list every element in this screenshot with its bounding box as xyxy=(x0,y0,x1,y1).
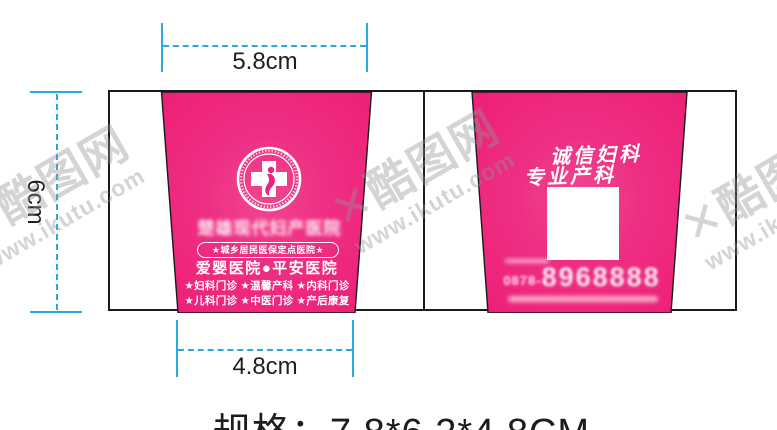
designation-badge: ★城乡居民医保定点医院★ xyxy=(197,242,339,258)
department-line-2: ★儿科门诊 ★中医门诊 ★产后康复 xyxy=(147,293,387,308)
phone-prefix: 0878- xyxy=(503,273,541,291)
department-line-1: ★妇科门诊 ★温馨产科 ★内科门诊 xyxy=(147,278,387,293)
hospital-title-line: 爱婴医院●平安医院 xyxy=(157,257,377,278)
qr-code-placeholder xyxy=(547,187,619,260)
dim-left-bottom-tick xyxy=(30,311,82,313)
dim-left-dashed-line xyxy=(56,94,58,310)
dim-top-right-tick xyxy=(366,23,368,72)
dim-bottom-dashed-line xyxy=(178,349,352,351)
hospital-emblem-icon xyxy=(236,146,302,212)
hospital-name: 楚雄现代妇产医院 xyxy=(182,214,357,239)
dim-top-left-tick xyxy=(161,23,163,72)
dim-top-dashed-line xyxy=(163,45,366,47)
dim-bottom-label: 4.8cm xyxy=(165,353,365,381)
blurred-address-line xyxy=(508,296,658,302)
dim-left-top-tick xyxy=(30,91,82,93)
spec-text: 规格：7.8*6.2*4.8CM xyxy=(0,401,777,430)
dieline-drawing: 楚雄现代妇产医院 ★城乡居民医保定点医院★ 爱婴医院●平安医院 ★妇科门诊 ★温… xyxy=(108,90,737,311)
dim-top-label: 5.8cm xyxy=(165,48,365,76)
phone-row: 0878- 8968888 xyxy=(482,264,682,291)
cup-design-proof: 5.8cm 6cm 4.8cm xyxy=(0,0,777,430)
phone-number: 8968888 xyxy=(542,264,661,291)
watermark-x-icon: ✕ xyxy=(0,188,13,253)
dim-left-label: 6cm xyxy=(21,172,49,232)
